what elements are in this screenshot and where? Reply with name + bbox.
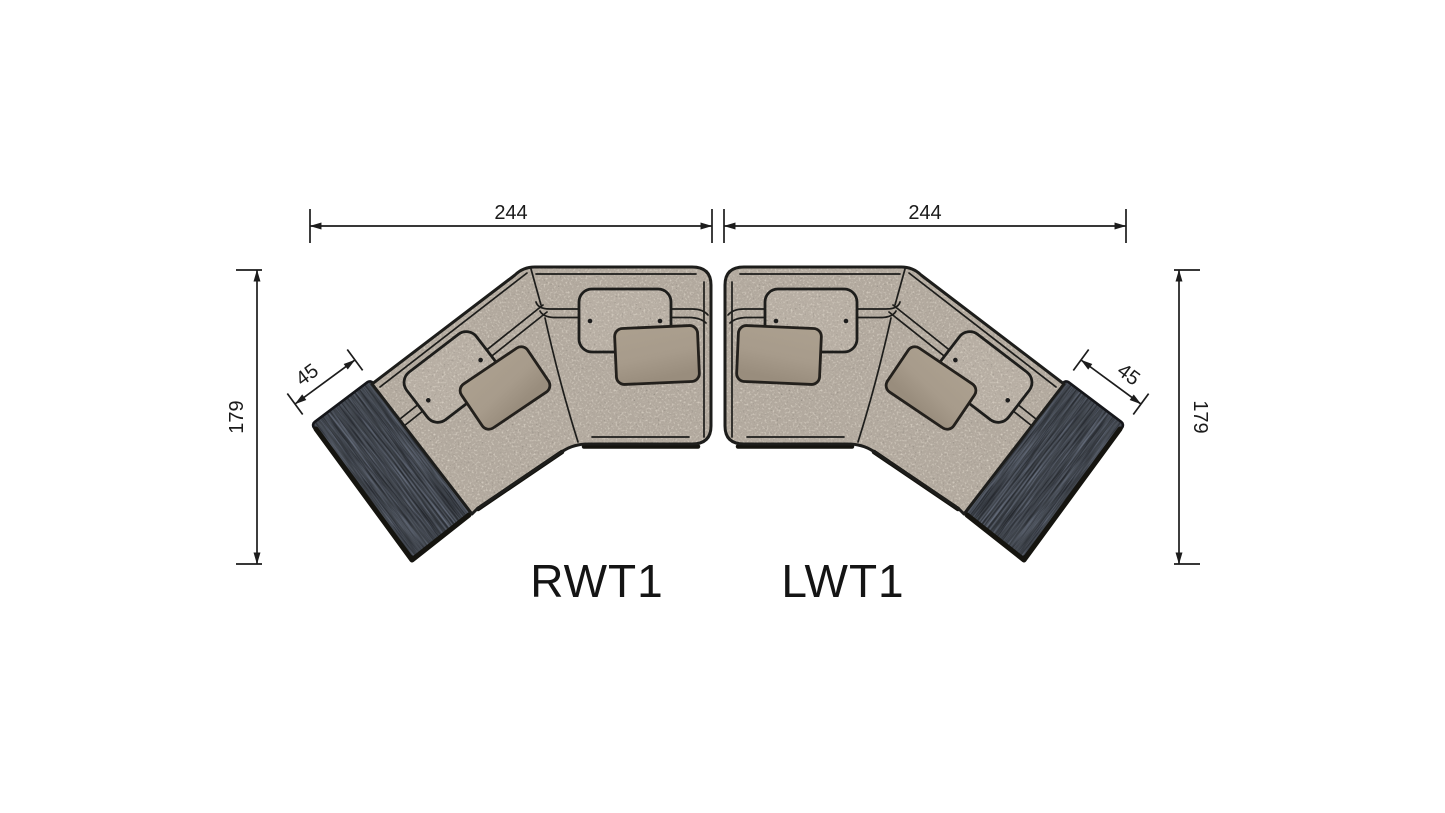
dimension-width-left: 244 bbox=[310, 202, 712, 243]
dimension-depth-right: 179 bbox=[1174, 270, 1211, 564]
dimension-value: 45 bbox=[292, 360, 323, 391]
furniture-dimension-diagram: 244 244 179 179 45 45 RWT1 LWT1 bbox=[0, 0, 1445, 813]
dimension-value: 45 bbox=[1113, 359, 1144, 390]
dimension-value: 179 bbox=[226, 400, 248, 433]
sofa-piece-right bbox=[725, 267, 1125, 560]
diagram-svg: 244 244 179 179 45 45 RWT1 LWT1 bbox=[0, 0, 1445, 813]
piece-label-left: RWT1 bbox=[530, 555, 664, 607]
dimension-width-right: 244 bbox=[724, 202, 1126, 243]
sofa-piece-left bbox=[311, 267, 711, 560]
dimension-value: 244 bbox=[494, 202, 527, 224]
dimension-depth-left: 179 bbox=[226, 270, 262, 564]
dimension-value: 179 bbox=[1189, 400, 1211, 433]
dimension-value: 244 bbox=[908, 202, 941, 224]
piece-label-right: LWT1 bbox=[781, 555, 904, 607]
